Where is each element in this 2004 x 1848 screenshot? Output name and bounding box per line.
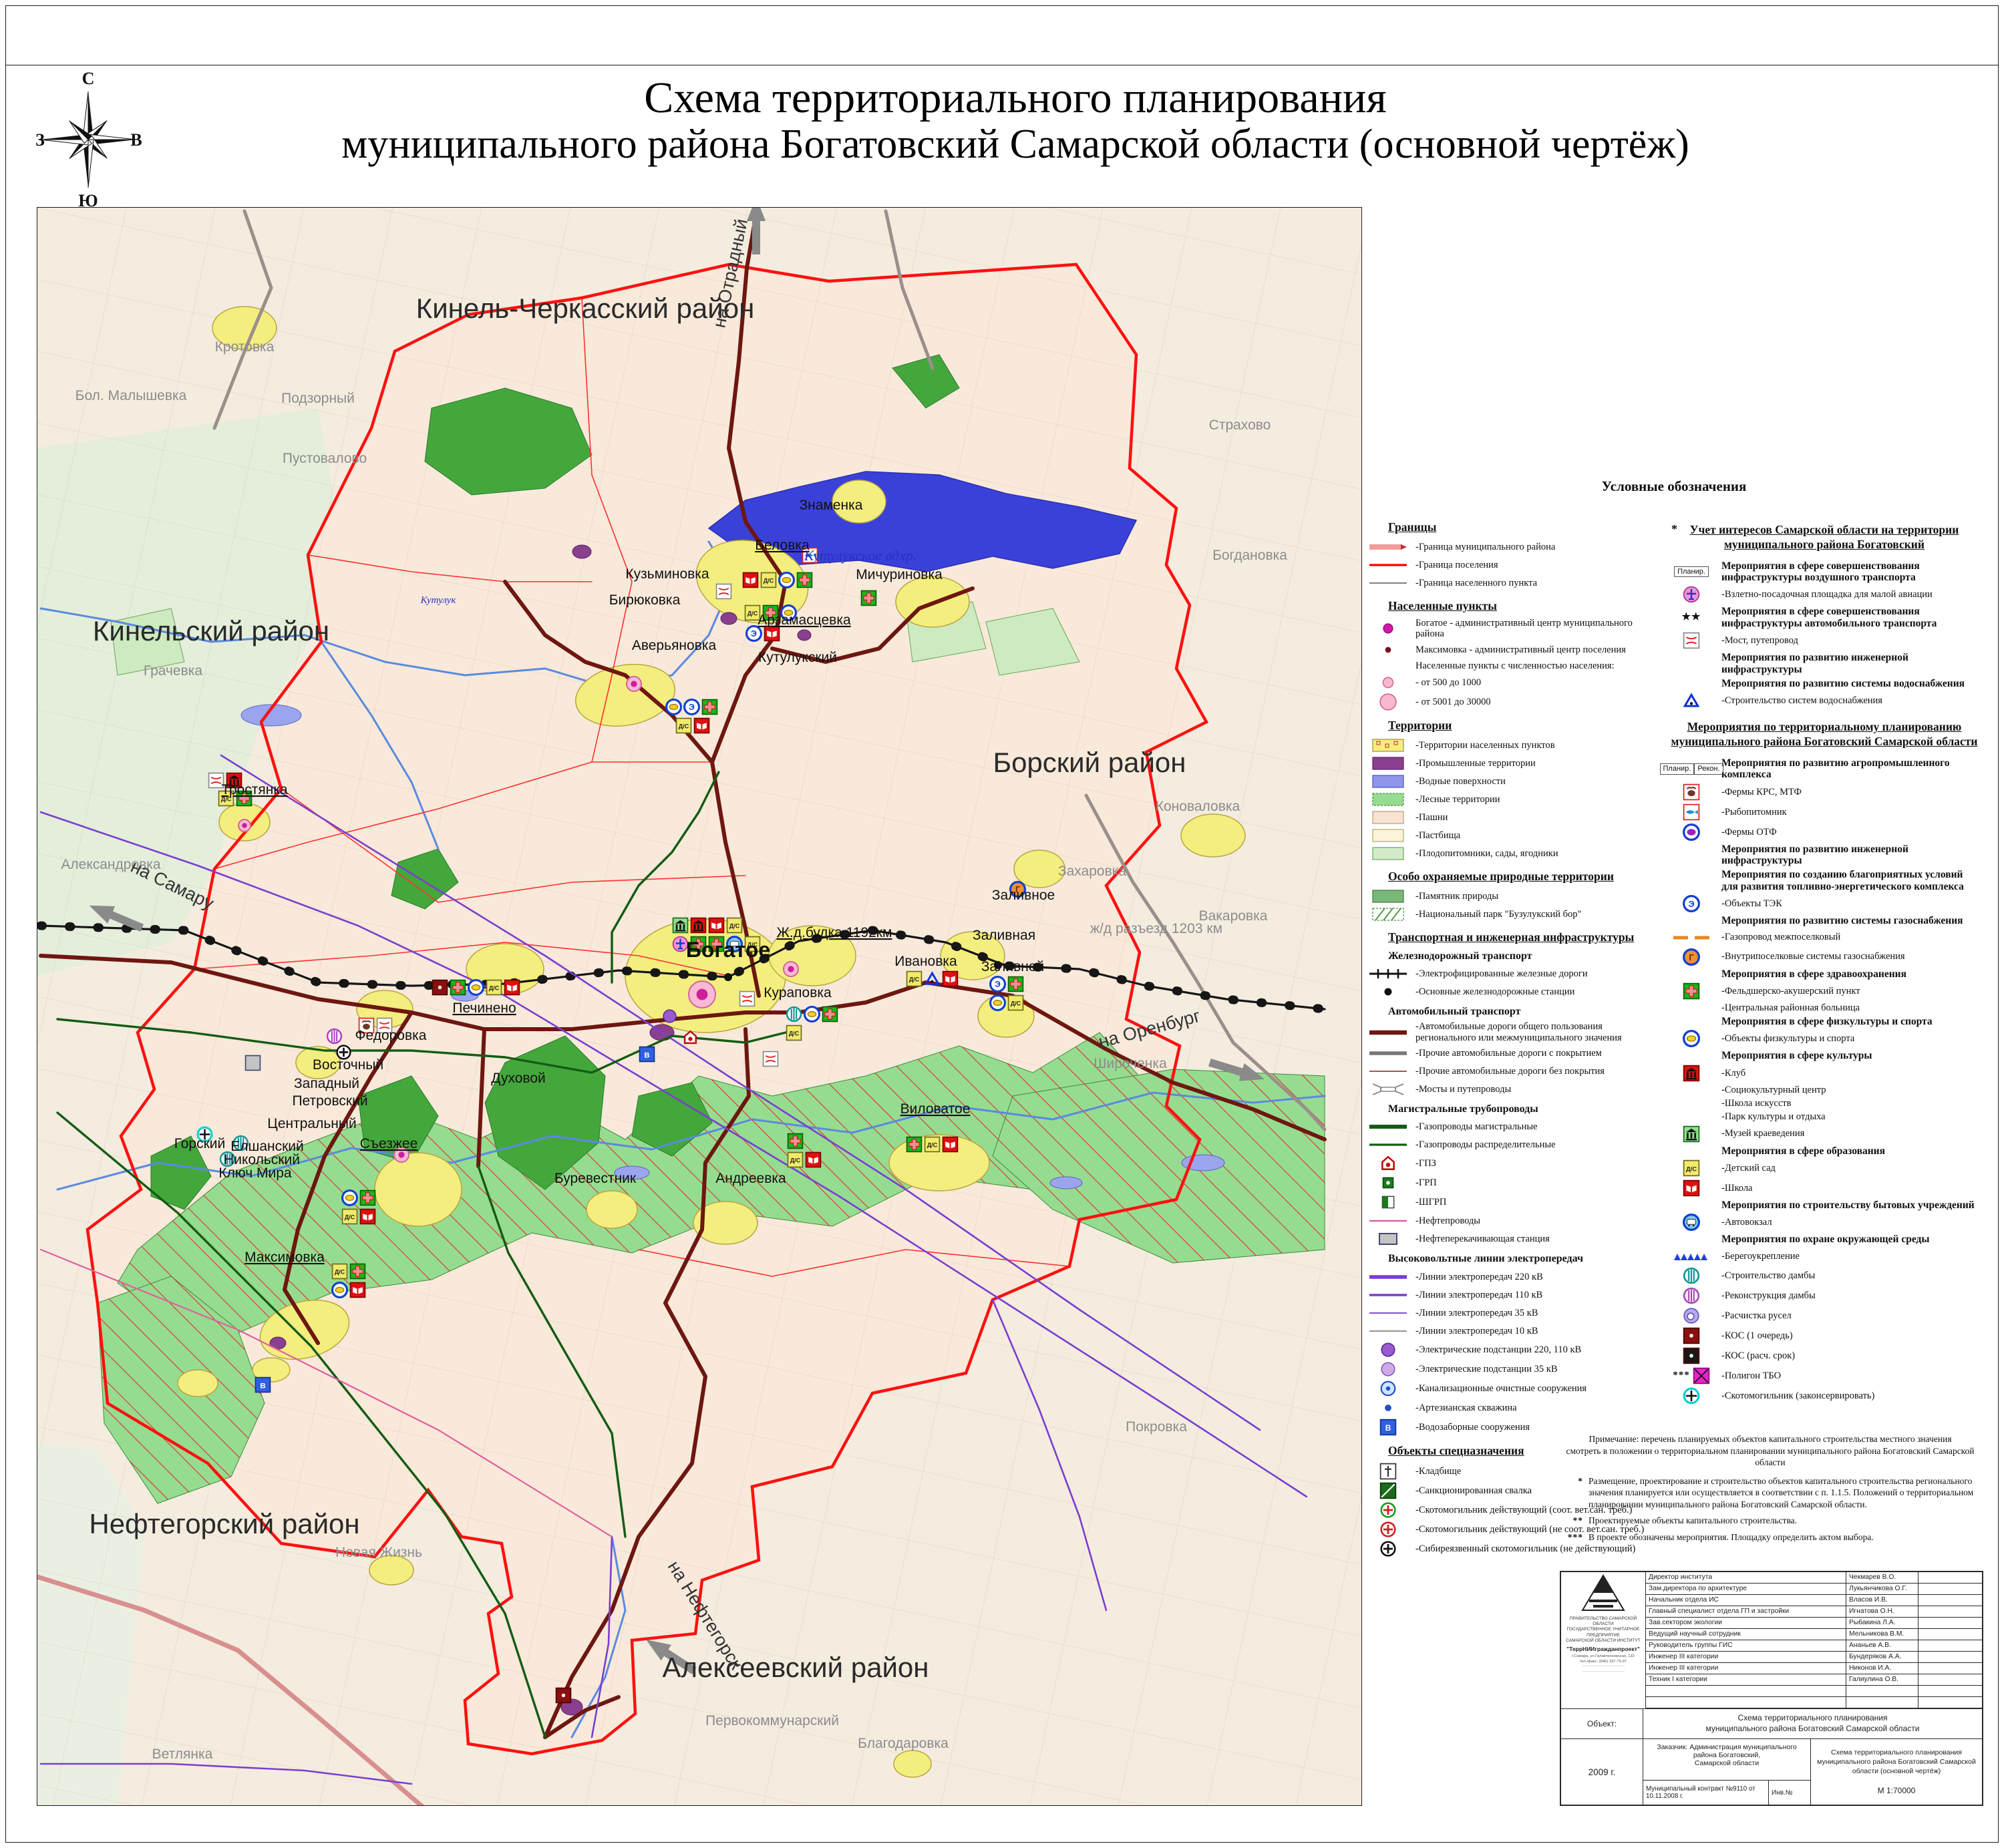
role-title: Руководитель группы ГИС [1646,1640,1846,1652]
pig-icon [1683,823,1700,841]
settlement-label: Вакаровка [1199,908,1268,924]
legend-item: Мероприятия по развитию инженерной инфра… [1667,844,1981,867]
legend-item: -Взлетно-посадочная площадка для малой а… [1667,586,1981,603]
svg-text:Э: Э [689,703,695,712]
svg-text:З: З [35,130,45,150]
settlement-label: Съезжее [360,1136,418,1151]
school-icon [1683,1179,1700,1197]
legend-item: -Скотомогильник (законсервировать) [1667,1387,1981,1405]
legend-item: -Рыбопитомник [1667,803,1981,821]
legend-item: Планир.Мероприятия в сфере совершенствов… [1667,560,1981,584]
bridge2-icon [764,1052,778,1067]
gpz-icon [1379,1155,1397,1172]
legend-item: Богатое - административный центр муницип… [1367,618,1658,639]
legend-item: -Нефтепроводы [1367,1213,1658,1229]
role-title: Техник I категории [1646,1674,1846,1686]
lep220-swatch [1367,1269,1409,1285]
sub35-icon [1379,1360,1397,1378]
legend-item: Мероприятия в сфере здравоохранения [1667,968,1981,980]
bridge2-icon [717,584,731,599]
fap-icon [862,591,876,606]
sk-ok-icon [1379,1501,1397,1519]
sport-icon [333,1283,347,1298]
bridge2-icon [740,992,755,1006]
legend-item: -Электрические подстанции 35 кВ [1367,1360,1658,1378]
legend-item: -Школа искусств [1667,1098,1981,1109]
legend-item: Д/С-Детский сад [1667,1159,1981,1177]
role-title: Ведущий научный сотрудник [1646,1629,1846,1640]
plane-icon [1683,586,1700,603]
settlement-label: Кротовка [215,339,275,355]
legend-item: Планир.Рекон.Мероприятия по развитию агр… [1667,757,1981,781]
legend-item: -КОС (1 очередь) [1667,1327,1981,1344]
stamp-year: 2009 г. [1561,1739,1643,1805]
school-icon [806,1153,821,1167]
legend-item: -Пастбища [1367,827,1658,844]
settlement-label: Богатое [686,938,770,962]
donut-icon [1683,1307,1700,1324]
sw-pashni-swatch [1367,809,1409,825]
compass-rose: СЮ ЗВ [35,69,142,210]
nps-swatch [1367,1231,1409,1247]
institute-name: "ТеррНИИгражданпроект" [1562,1646,1644,1652]
settlement-label: Аверьяновка [632,638,717,653]
legend-item: -Автовокзал [1667,1214,1981,1231]
legend-item: -Памятник природы [1367,888,1658,904]
role-title: Директор института [1646,1572,1846,1584]
sw-purple-swatch [1367,755,1409,771]
settlement-label: Бол. Малышевка [75,388,187,403]
dot-dr-icon [1379,641,1397,659]
svg-text:Д/С: Д/С [790,1157,801,1164]
role-name: Никонов И.А. [1846,1663,1918,1674]
ds-icon: Д/С [1683,1159,1700,1177]
legend-item: Населенные пункты с численностью населен… [1367,661,1658,671]
road-gray-swatch [1367,1045,1409,1061]
sk-sib-icon [1379,1540,1397,1557]
svg-text:Д/С: Д/С [1011,1000,1021,1007]
legend-item: -Объекты физкультуры и спорта [1667,1030,1981,1047]
tek-icon: Э [991,977,1005,992]
pop-sm-icon [1379,674,1397,691]
legend-item: -КОС (расч. срок) [1667,1347,1981,1364]
settlement-label: Кураповка [764,985,832,1000]
cem-icon [1379,1463,1397,1480]
legend-item: -ШГРП [1367,1193,1658,1211]
legend-item: - от 500 до 1000 [1367,674,1658,691]
legend-item: - от 5001 до 30000 [1367,693,1658,711]
svg-text:Д/С: Д/С [747,610,758,617]
role-name: Галиулина О.В. [1846,1674,1918,1686]
legend-column-right: *Учет интересов Самарской области на тер… [1667,512,1981,1407]
svg-text:Д/С: Д/С [909,976,920,983]
settlement-label: Заливная [973,928,1035,943]
legend-section-header: Особо охраняемые природные территории [1388,870,1658,884]
settlement-label: Страхово [1209,417,1271,433]
legend-item: -Промышленные территории [1367,755,1658,771]
svg-text:Д/С: Д/С [1686,1165,1697,1172]
kos-ring-icon [1379,1380,1397,1397]
grp-icon [1379,1174,1397,1191]
sport-icon [343,1191,357,1206]
dam-teal-icon [787,1007,801,1021]
role-title: Зав.сектором экологии [1646,1618,1846,1629]
settlement-label: Тростянка [221,782,288,797]
title-line-1: Схема территориального планирования [174,75,1857,121]
settlement-label: Новая Жизнь [335,1545,422,1560]
svg-text:Д/С: Д/С [679,723,689,730]
object-value: Схема территориального планирования муни… [1643,1709,1982,1738]
ds-icon: Д/С [762,573,776,588]
settlement-label: Восточный [313,1057,383,1073]
legend-item: -Канализационные очистные сооружения [1367,1380,1658,1397]
settlement-label: Благодаровка [858,1736,949,1751]
legend-subheader: Автомобильный транспорт [1388,1006,1658,1018]
role-name: Чекмарев В.О. [1846,1572,1918,1584]
fap-icon [798,573,812,588]
org-logo-icon [1580,1574,1627,1613]
sport-icon [991,996,1005,1010]
svg-text:В: В [130,130,142,150]
legend-item: -Пашни [1367,809,1658,825]
water-label: Кутулук [420,595,457,606]
legend-item: -Нефтеперекачивающая станция [1367,1231,1658,1247]
legend-item: -Прочие автомобильные дороги без покрыти… [1367,1063,1658,1079]
legend-item: -Граница поселения [1367,557,1658,573]
legend-item: -Парк культуры и отдыха [1667,1111,1981,1122]
art-icon [1379,1399,1397,1417]
vz-icon: В [640,1047,655,1062]
settlement-label: Заливное [992,888,1055,903]
settlement-label: Печинено [452,1000,516,1016]
legend-item: -Клуб [1667,1065,1981,1082]
dam-purple-icon [327,1029,341,1043]
footnotes: *Размещение, проектирование и строительс… [1560,1475,1980,1543]
legend-subheader: Магистральные трубопроводы [1388,1103,1658,1115]
settlement-label: Первокоммунарский [705,1713,839,1728]
kos1-icon [556,1688,571,1703]
ds-icon: Д/С [925,1137,940,1152]
legend-item: -Электрические подстанции 220, 110 кВ [1367,1341,1658,1358]
legend-item: -Мосты и путепроводы [1367,1081,1658,1097]
role-name: Ананьев А.В. [1846,1640,1918,1652]
legend-item: -Автомобильные дороги общего пользования… [1367,1021,1658,1043]
fap-icon [1009,977,1023,992]
settlement-label: Горский [174,1136,225,1151]
ds-icon: Д/С [727,918,742,933]
legend-item: -Основные железнодорожные станции [1367,984,1658,1000]
role-name: Власов И.В. [1846,1595,1918,1606]
settlement-label: Кузьминовка [625,566,709,582]
ds-icon: Д/С [677,719,691,733]
gas-thick-swatch [1367,1119,1409,1135]
kos1-icon [1683,1327,1700,1344]
settlement-label: Покровка [1126,1419,1187,1435]
legend-item: -Фермы ОТФ [1667,823,1981,841]
fap-icon [361,1191,375,1206]
legend-section-header: Территории [1388,719,1658,733]
legend-item: -Школа [1667,1179,1981,1197]
svg-text:В: В [260,1382,265,1390]
settlement-label: Западный [294,1076,359,1091]
ds-icon: Д/С [487,980,502,995]
legend-item: -Газопроводы магистральные [1367,1119,1658,1135]
stamp-customer: Заказчик: Администрация муниципального р… [1643,1739,1810,1781]
vz-icon: В [1379,1419,1397,1436]
station-swatch [1367,984,1409,1000]
gas-g-icon: Г [1683,948,1700,966]
legend-item: -Граница муниципального района [1367,539,1658,555]
title-block: ПРАВИТЕЛЬСТВО САМАРСКОЙ ОБЛАСТИГОСУДАРСТ… [1560,1571,1983,1806]
gas-thin-swatch [1367,1137,1409,1153]
legend-item: Максимовка - административный центр посе… [1367,641,1658,659]
svg-text:Э: Э [1688,899,1694,909]
legend-subheader: Железнодорожный транспорт [1388,950,1658,962]
footnote: **Проектируемые объекты капитального стр… [1560,1515,1980,1527]
fap-icon [351,1264,365,1279]
cow2-icon [1683,783,1700,801]
legend-item: Мероприятия в сфере физкультуры и спорта [1667,1016,1981,1027]
sw-pamyat-swatch [1367,888,1409,904]
legend-item: -Строительство систем водоснабжения [1667,692,1981,709]
sw-sady-swatch [1367,846,1409,862]
museum-icon [673,918,688,933]
district-label: Борский район [993,747,1186,778]
sheet: СЮ ЗВ Схема территориального планировани… [0,0,2004,1848]
legend-item: -Фермы КРС, МТФ [1667,783,1981,801]
settlement-label: Широченка [1094,1056,1167,1071]
school-icon [765,626,780,641]
rail-swatch [1367,966,1409,982]
legend-item: Мероприятия в сфере культуры [1667,1050,1981,1061]
club-icon [1683,1065,1700,1082]
school-icon [943,1137,958,1152]
school-icon [743,573,758,588]
map-drawing: Д/СД/СД/СД/СЭЭД/СД/СД/СД/СД/СД/СД/СЭД/СГ… [37,208,1361,1805]
footnote: *Размещение, проектирование и строительс… [1560,1475,1980,1511]
settlement-label: Максимовка [244,1250,325,1265]
note-main: Примечание: перечень планируемых объекто… [1560,1433,1980,1469]
pop-lg-icon [1379,693,1397,711]
sport-icon [1683,1030,1700,1047]
stamp-scale: М 1:70000 [1878,1785,1916,1796]
oil-ln-swatch [1367,1213,1409,1229]
header-divider [5,65,1999,65]
sub220-icon [1379,1341,1397,1358]
dump-icon [1379,1482,1397,1499]
tek-icon: Э [685,700,699,715]
legend-item: -Граница населенного пункта [1367,575,1658,591]
legend-section-header: Транспортная и инженерная инфраструктуры [1388,930,1658,944]
legend-item: -Линии электропередач 110 кВ [1367,1287,1658,1303]
svg-text:Д/С: Д/С [927,1142,938,1149]
settlement-label: Беловка [755,538,810,553]
club-icon [691,918,706,933]
legend-item: -Социокультурный центр [1667,1085,1981,1095]
legend-item: Мероприятия по развитию инженерной инфра… [1667,652,1981,675]
sport-icon [469,980,484,995]
settlement-label: Ключ Мира [218,1165,291,1181]
svg-text:С: С [82,69,95,88]
legend-item: Мероприятия по строительству бытовых учр… [1667,1199,1981,1211]
line-pink-swatch [1367,539,1409,555]
legend-item: -Линии электропередач 35 кВ [1367,1305,1658,1321]
svg-text:Д/С: Д/С [489,985,500,992]
legend-item: -Артезианская скважина [1367,1399,1658,1417]
svg-text:Г: Г [1689,952,1694,962]
settlement-label: Захаровка [1058,864,1126,879]
legend-section-header: Границы [1388,520,1658,534]
legend-section-header: Населенные пункты [1388,599,1658,613]
legend-item: Г-Внутрипоселковые системы газоснабжения [1667,948,1981,966]
legend-item: -Прочие автомобильные дороги с покрытием [1367,1045,1658,1061]
page-title: Схема территориального планирования муни… [174,75,1857,169]
legend-item: Э-Объекты ТЭК [1667,895,1981,912]
district-label: Кинельский район [93,615,329,646]
svg-text:В: В [1385,1423,1391,1433]
district-label: Нефтегорский район [89,1508,359,1539]
ds-icon: Д/С [1009,996,1023,1010]
settlement-label: Знаменка [799,498,862,513]
legend-group-header: Мероприятия по территориальному планиров… [1667,720,1981,749]
role-name: Игнатова О.Н. [1846,1606,1918,1618]
nps-icon [246,1056,261,1071]
legend-item: -Линии электропередач 10 кВ [1367,1323,1658,1339]
line-thin-swatch [1367,575,1409,591]
lep35-swatch [1367,1305,1409,1321]
tek-icon: Э [747,626,762,641]
sw-forest-swatch [1367,791,1409,807]
school-icon [505,980,520,995]
svg-text:Д/С: Д/С [345,1214,355,1221]
roles-table: Директор институтаЧекмарев В.О.Зам.дирек… [1646,1572,1982,1708]
fap-icon [703,700,717,715]
role-title: Инженер III категории [1646,1663,1846,1674]
legend-group-header: *Учет интересов Самарской области на тер… [1667,523,1981,552]
skoto-icon [1683,1387,1700,1405]
dot-mag-icon [1379,620,1397,637]
role-title: Инженер III категории [1646,1652,1846,1663]
legend-item: -Плодопитомники, сады, ягодники [1367,846,1658,862]
bridge2-icon [1683,632,1700,649]
footnote: ***В проекте обозначены мероприятия. Пло… [1560,1531,1980,1543]
svg-text:Д/С: Д/С [789,1031,800,1037]
settlement-label: Ветлянка [152,1746,213,1762]
legend-item: Мероприятия в сфере образования [1667,1145,1981,1157]
role-name: Рыбакина Л.А. [1846,1618,1918,1629]
legend-item: -Лесные территории [1367,791,1658,807]
legend-notes: Примечание: перечень планируемых объекто… [1560,1433,1980,1547]
svg-text:Э: Э [995,980,1001,989]
role-title: Главный специалист отдела ГП и застройки [1646,1606,1846,1618]
dam-teal-icon [1683,1267,1700,1284]
settlement-label: Кутулукский [758,650,837,665]
title-line-2: муниципального района Богатовский Самарс… [174,121,1857,168]
svg-text:Д/С: Д/С [335,1269,345,1276]
org-logo-cell: ПРАВИТЕЛЬСТВО САМАРСКОЙ ОБЛАСТИГОСУДАРСТ… [1561,1572,1646,1708]
settlement-label: Бирюковка [609,592,681,608]
legend-item: -Мост, путепровод [1667,632,1981,649]
legend-item: ***-Полигон ТБО [1667,1367,1981,1384]
legend-item: -ГПЗ [1367,1155,1658,1172]
legend-subheader: Высоковольтные линии электропередач [1388,1253,1658,1265]
settlement-label: Коноваловка [1156,799,1240,814]
legend-item: Мероприятия по созданию благоприятных ус… [1667,869,1981,892]
settlement-label: Ж.д.будка 1192км [777,925,892,940]
road-thin-swatch [1367,1063,1409,1079]
legend-item: Мероприятия по развитию системы водоснаб… [1667,678,1981,689]
legend-item: -Центральная районная больница [1667,1002,1981,1013]
legend-item: -Фельдшерско-акушерский пункт [1667,982,1981,1000]
settlement-label: Богдановка [1212,548,1287,563]
svg-text:В: В [644,1051,649,1059]
legend-item: -Берегоукрепление [1667,1248,1981,1264]
ds-icon: Д/С [343,1210,357,1224]
tri-blue-icon [1683,692,1700,709]
plan-box: Планир. [1660,763,1695,774]
settlement-label: Духовой [491,1071,545,1086]
fap-icon [823,1007,838,1022]
stamp-drawing-title: Схема территориального планирования муни… [1814,1748,1979,1777]
sw-park-swatch [1367,906,1409,922]
settlement-label: Виловатое [900,1101,971,1117]
map-canvas: Д/СД/СД/СД/СЭЭД/СД/СД/СД/СД/СД/СД/СЭД/СГ… [37,207,1362,1806]
settlement-label: Грачевка [144,663,203,679]
water-label: Кутулукское вдхр. [804,547,916,564]
legend-panel: Условные обозначения Границы-Граница мун… [1367,478,1981,1559]
lep10-swatch [1367,1323,1409,1339]
stamp-inv: Инв.№ [1769,1781,1810,1805]
school-icon [361,1210,375,1224]
ds-icon: Д/С [907,972,922,986]
role-name: Бундеряков А.А. [1846,1652,1918,1663]
legend-item: -ГРП [1367,1174,1658,1191]
org-lines: ПРАВИТЕЛЬСТВО САМАРСКОЙ ОБЛАСТИГОСУДАРСТ… [1562,1616,1644,1644]
ds-icon: Д/С [788,1153,803,1167]
sw-blue-swatch [1367,773,1409,789]
svg-text:Д/С: Д/С [729,923,740,930]
legend-item: -Строительство дамбы [1667,1267,1981,1284]
dash-or-swatch [1671,930,1712,946]
settlement-label: Федоровка [355,1028,427,1043]
school-icon [695,719,709,733]
bridge-ln-swatch [1367,1081,1409,1097]
kos2-icon [1683,1347,1700,1364]
bus-icon [1683,1214,1700,1231]
settlement-label: Мичуриновка [856,567,943,582]
role-title: Зам.директора по архитектуре [1646,1584,1846,1595]
stamp-contract: Муниципальный контракт №9110 от 10.11.20… [1643,1781,1769,1805]
role-name: Мельникова В.М. [1846,1629,1918,1640]
settlement-label: Пустовалово [283,451,367,466]
settlement-label: Заливной [981,959,1045,974]
sport-icon [667,700,681,715]
settlement-label: Арзамасцевка [758,612,851,628]
sw-yellow-swatch [1367,737,1409,753]
role-name [1846,1697,1918,1708]
fap-icon [788,1134,803,1149]
sport-icon [805,1007,820,1022]
role-title [1646,1686,1846,1697]
tek-icon: Э [1683,895,1700,912]
tbo-icon [1693,1367,1710,1384]
tri-row-swatch [1671,1248,1712,1264]
ds-icon: Д/С [333,1264,347,1279]
road-main-swatch [1367,1025,1409,1041]
role-name: Лукьянчикова О.Г. [1846,1584,1918,1595]
legend-item: -Расчистка русел [1667,1307,1981,1324]
legend-item: -Музей краеведения [1667,1125,1981,1143]
